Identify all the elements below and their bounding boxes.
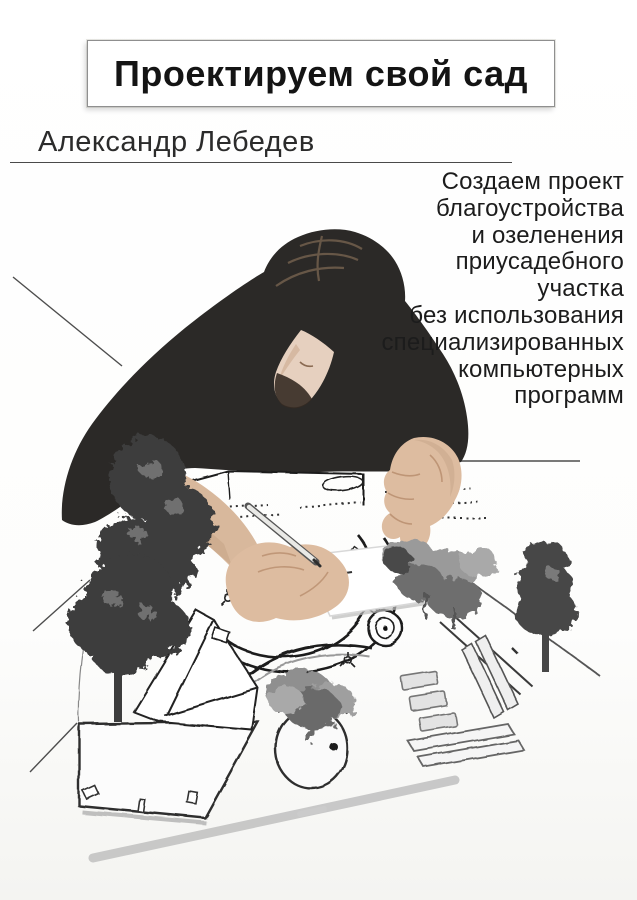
subtitle-line: программ [294,383,624,410]
title-box: Проектируем свой сад [87,40,555,107]
subtitle-line: специализированных [294,330,624,357]
bushes-center-icon [382,538,498,630]
author-underline [10,162,512,163]
subtitle-line: и озеленения [294,223,624,250]
subtitle-line: компьютерных [294,357,624,384]
subtitle-line: приусадебного [294,249,624,276]
subtitle-line: Создаем проект [294,169,624,196]
lawn-terrace [79,722,258,823]
book-title: Проектируем свой сад [114,53,528,95]
round-flowerbed [368,611,402,645]
subtitle-line: участка [294,276,624,303]
subtitle-block: Создаем проект благоустройства и озелене… [294,169,624,410]
subtitle-line: благоустройства [294,196,624,223]
subtitle-line: без использования [294,303,624,330]
author-name: Александр Лебедев [38,126,315,159]
book-cover: Проектируем свой сад Александр Лебедев С… [0,0,637,900]
